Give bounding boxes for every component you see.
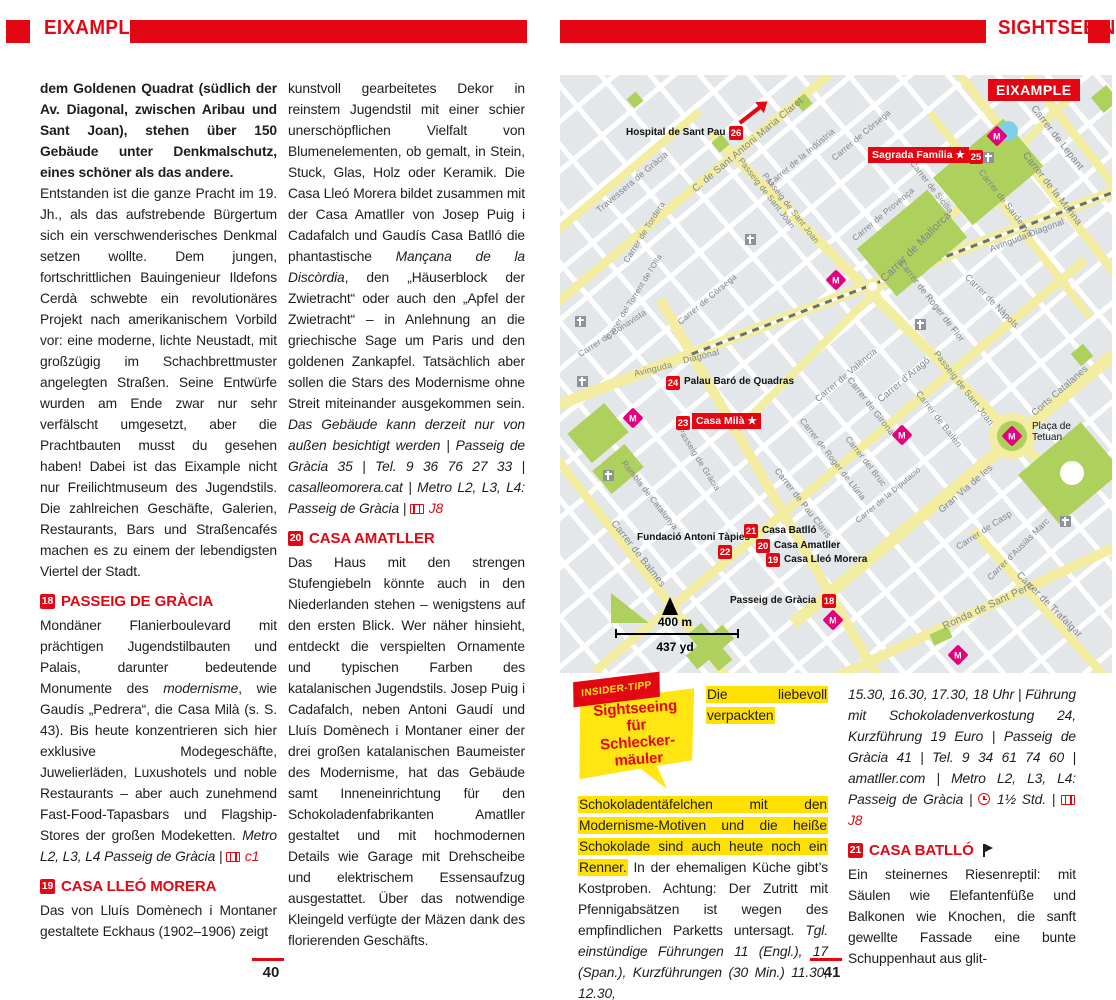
text-column-1: dem Goldenen Quadrat (südlich der Av. Di… [40,78,277,942]
insider-tip-paragraph: INSIDER-TIPPSightseeingfürSchlecker-mäul… [578,684,828,1000]
paragraph: Entstanden ist die ganze Pracht im 19. J… [40,183,277,582]
street-name-label: Passeig de Sant Joan [760,171,821,245]
city-map: EIXAMPLE 400 m 437 yd MMMMMMMTravessera … [560,75,1112,673]
paragraph: Ein steinernes Riesenreptil: mit Säulen … [848,864,1076,969]
street-name-label: Rambla de Catalunya [620,458,681,532]
hospital-direction-arrow-icon [739,105,762,124]
map-poi-badge: 20 [756,539,770,553]
header-left-block [6,20,30,43]
map-poi-label: Palau Baró de Quadras [684,376,794,387]
text-segment: , wie Gaudís „Pedrera“, die Casa Milà (s… [40,681,277,843]
text-segment: Das von Lluís Domènech i Montaner gestal… [40,903,277,939]
text-column-4: 15.30, 16.30, 17.30, 18 Uhr | Führung mi… [848,684,1076,969]
church-icon [575,316,586,327]
text-segment: Ein steinernes Riesenreptil: mit Säulen … [848,867,1076,966]
insider-tip-title: SightseeingfürSchlecker-mäuler [576,696,698,772]
park-area [627,92,644,109]
flag-icon [983,844,996,857]
map-poi-badge: 23 [676,416,690,430]
street-name-label: C. de Sant Antoni Maria Claret [690,95,805,194]
footer-rule-right [810,958,842,961]
text-segment: c1 [241,849,259,864]
paragraph: Das Haus mit den strengen Stufengiebeln … [288,552,525,951]
paragraph: kunstvoll gearbeitetes Dekor in reinstem… [288,78,525,519]
paragraph: dem Goldenen Quadrat (südlich der Av. Di… [40,78,277,183]
square-name-label: Plaça deTetuan [1032,421,1071,443]
text-segment: Entstanden ist die ganze Pracht im 19. J… [40,186,277,579]
map-poi-badge: 25 [969,150,983,164]
street-name-label: Carrer de Bailèn [914,389,964,449]
header-right-block [1088,20,1110,43]
footer-rule-left [252,958,284,961]
text-segment: J8 [425,501,443,516]
header-left-bar [130,20,527,43]
map-poi-redbox: Casa Milà ★ [692,413,761,429]
street-name-label: Passeig de Gràcia [675,425,722,492]
map-ref-icon [1061,795,1075,805]
church-icon [745,234,756,245]
metro-station-icon: M [947,644,968,665]
paragraph: Das von Lluís Domènech i Montaner gestal… [40,900,277,942]
section-heading: 19CASA LLEÓ MORERA [40,876,277,897]
map-poi-badge: 18 [822,594,836,608]
insider-tip-bubble: INSIDER-TIPPSightseeingfürSchlecker-mäul… [578,686,696,792]
map-circle [1060,461,1084,485]
street-name-label: Carrer de la Indústria [766,126,837,188]
map-scale-meters: 400 m [643,615,707,629]
poi-number-badge: 18 [40,594,55,609]
poi-number-badge: 21 [848,843,863,858]
park-area [1091,85,1112,113]
street-name-label: Carrer de Bonavista [576,307,648,359]
text-segment: 15.30, 16.30, 17.30, 18 Uhr | Führung mi… [848,687,1076,807]
map-poi-badge: 22 [718,545,732,559]
street-name-label: Carrer de Nàpols [963,272,1021,330]
map-poi-badge: 21 [744,524,758,538]
section-heading: 20CASA AMATLLER [288,528,525,549]
map-region-label: EIXAMPLE [988,79,1080,101]
guidebook-spread: EIXAMPLE SIGHTSEEING dem Goldenen Quadra… [0,0,1116,1000]
map-poi-label: Passeig de Gràcia [730,595,816,606]
map-circle [866,280,879,293]
page-number-right: 41 [816,964,848,981]
map-scale-yards: 437 yd [643,640,707,654]
map-ref-icon [410,504,424,514]
clock-ref-icon [978,793,990,805]
page-number-left: 40 [255,964,287,981]
map-poi-badge: 19 [766,553,780,567]
section-heading: 21CASA BATLLÓ [848,840,1076,861]
paragraph: 15.30, 16.30, 17.30, 18 Uhr | Führung mi… [848,684,1076,831]
map-poi-label: Casa Lleó Morera [784,554,867,565]
section-heading-label: CASA BATLLÓ [869,840,974,861]
map-poi-label: Casa Batlló [762,525,816,536]
map-poi-badge: 24 [666,376,680,390]
map-poi-redbox: Sagrada Família ★ [868,147,969,163]
text-segment: modernisme [163,681,238,696]
poi-number-badge: 20 [288,531,303,546]
map-poi-badge: 26 [729,126,743,140]
map-ref-icon [226,852,240,862]
metro-station-icon: M [622,407,643,428]
map-poi-label: Casa Amatller [774,540,840,551]
text-segment: , den „Häuserblock der Zwietracht“ oder … [288,270,525,411]
text-column-3: INSIDER-TIPPSightseeingfürSchlecker-mäul… [578,684,828,1000]
section-heading-label: CASA LLEÓ MORERA [61,876,216,897]
map-poi-label: Hospital de Sant Pau [626,127,725,138]
text-segment: Das Haus mit den strengen Stufengiebeln … [288,555,525,948]
text-segment: kunstvoll gearbeitetes Dekor in reinstem… [288,81,525,264]
paragraph: Mondäner Flanierboulevard mit prächtigen… [40,615,277,867]
church-icon [983,152,994,163]
street-name-label: Corts Catalanes [1030,364,1091,419]
map-poi-label: Fundació Antoni Tàpies [637,532,750,543]
text-segment: dem Goldenen Quadrat (südlich der Av. Di… [40,81,277,180]
street-name-label: Carrer de Balmes [609,518,668,589]
section-heading: 18PASSEIG DE GRÀCIA [40,591,277,612]
street-name-label: Carrer de Còrsega [676,271,739,326]
text-segment: J8 [848,813,862,828]
church-icon [915,319,926,330]
poi-number-badge: 19 [40,879,55,894]
text-column-2: kunstvoll gearbeitetes Dekor in reinstem… [288,78,525,951]
text-segment: Das Gebäude kann derzeit nur von außen b… [288,417,525,516]
church-icon [603,470,614,481]
page-header-left: EIXAMPLE [44,17,143,40]
street-name-label: Ronda de Sant Pere [941,580,1036,633]
text-segment: 1½ Std. | [991,792,1061,807]
map-scale-bar [615,629,739,638]
north-arrow-icon [662,597,678,615]
church-icon [577,376,588,387]
church-icon [1060,516,1071,527]
section-heading-label: PASSEIG DE GRÀCIA [61,591,213,612]
section-heading-label: CASA AMATLLER [309,528,435,549]
header-right-bar [560,20,986,43]
